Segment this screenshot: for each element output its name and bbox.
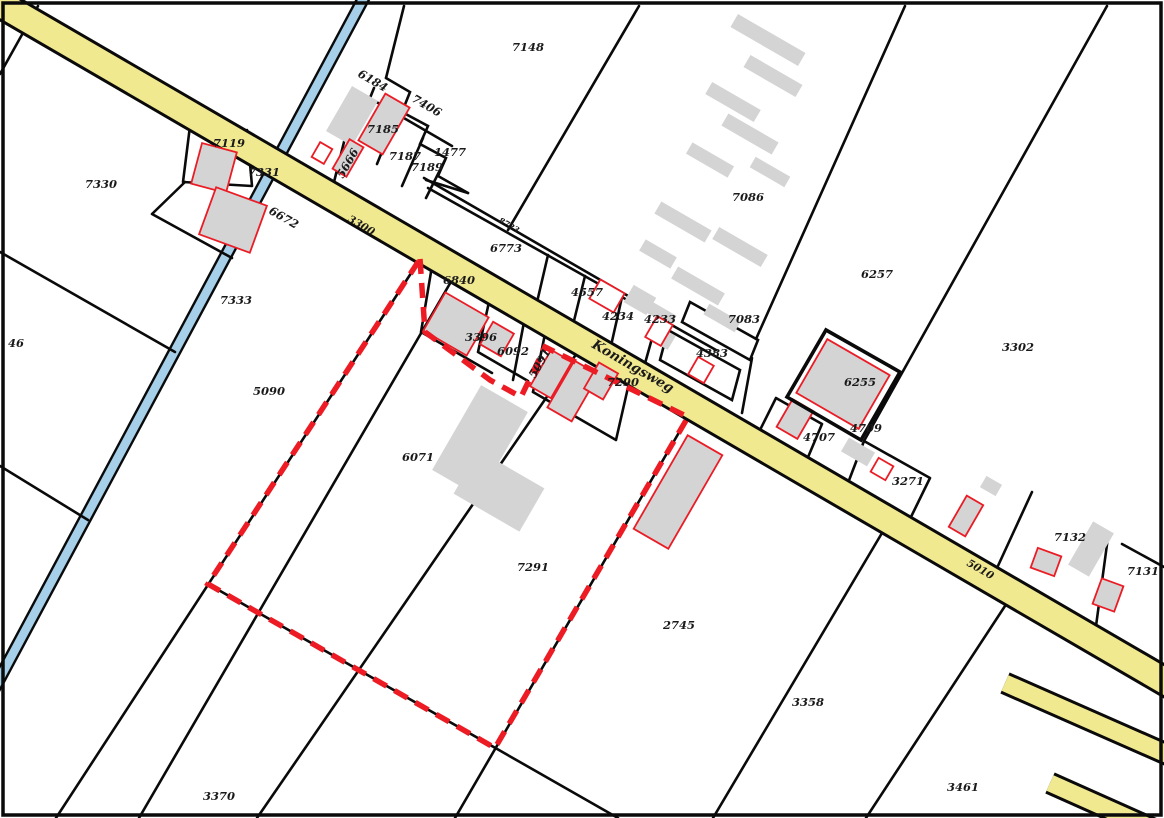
parcel-number-label: 5090 [253,384,285,398]
parcel-number-label: 4709 [850,421,882,435]
parcel-number-label: 7333 [220,293,252,307]
parcel-number-label: 1477 [434,145,466,159]
parcel-number-label: 4234 [602,309,634,323]
parcel-number-label: 6257 [861,267,893,281]
parcel-number-label: 3358 [792,695,824,709]
parcel-number-label: 4557 [571,285,603,299]
parcel-number-label: 3370 [203,789,235,803]
parcel-number-label: 6840 [443,273,475,287]
parcel-number-label: 6071 [402,450,434,464]
parcel-number-label: 3396 [465,330,497,344]
parcel-number-label: 7131 [1127,564,1159,578]
parcel-number-label: 3271 [892,474,924,488]
parcel-number-label: 7119 [213,136,245,150]
parcel-number-label: 7189 [411,160,443,174]
parcel-number-label: 6773 [490,241,522,255]
parcel-number-label: 7291 [517,560,549,574]
parcel-number-label: 7185 [367,122,399,136]
parcel-number-label: 4383 [696,346,728,360]
cadastral-map: 7330711973316672618474067185566671877189… [0,0,1164,818]
parcel-number-label: 7086 [732,190,764,204]
parcel-number-label: 46 [8,336,24,350]
parcel-number-label: 7331 [248,165,280,179]
map-canvas: 7330711973316672618474067185566671877189… [0,0,1164,818]
parcel-number-label: 7148 [512,40,544,54]
parcel-number-label: 3302 [1002,340,1034,354]
parcel-number-label: 3461 [947,780,979,794]
parcel-number-label: 7290 [607,375,639,389]
parcel-number-label: 6255 [844,375,876,389]
parcel-number-label: 2745 [662,618,695,632]
parcel-number-label: 6092 [497,344,529,358]
parcel-number-label: 4233 [644,312,676,326]
parcel-number-label: 7132 [1054,530,1086,544]
parcel-number-label: 4707 [803,430,835,444]
parcel-number-label: 7083 [728,312,760,326]
parcel-number-label: 7330 [85,177,117,191]
